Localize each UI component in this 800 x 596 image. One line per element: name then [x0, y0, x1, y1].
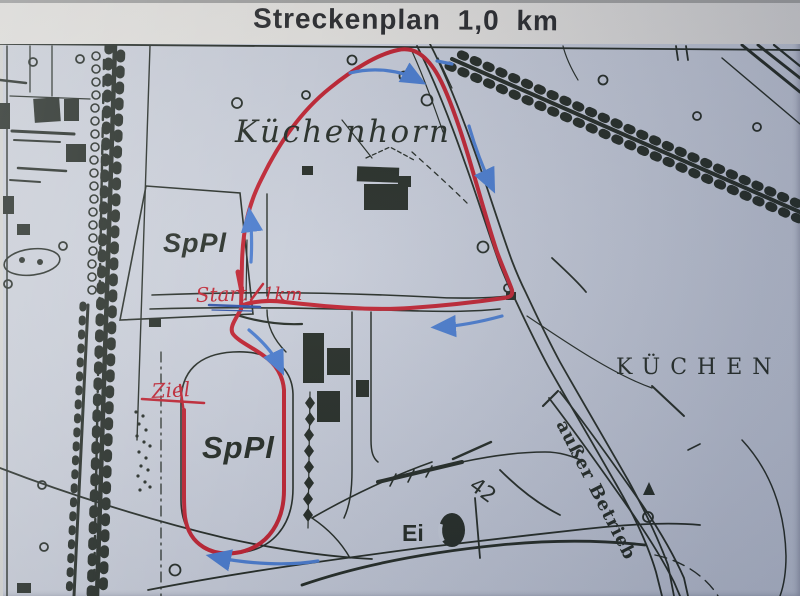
- label-sppl-upper: SpPl: [163, 228, 227, 258]
- top-right-railway: [449, 52, 800, 219]
- title-strip: Streckenplan 1,0 km: [0, 0, 800, 44]
- arrow-north: [250, 216, 252, 262]
- left-railway: [69, 46, 121, 596]
- map-drawing: Küchenhorn SpPl SpPl KÜCHEN außer Betrie…: [0, 0, 800, 596]
- corner-hatching: [563, 45, 800, 124]
- page-title: Streckenplan 1,0 km: [196, 2, 616, 38]
- label-road-number: 42: [465, 473, 501, 508]
- diamond-chain: [303, 392, 315, 528]
- label-kuechenhorn: Küchenhorn: [234, 114, 452, 150]
- arrow-west-return: [440, 316, 502, 327]
- finish-label: Ziel: [150, 377, 191, 403]
- arrow-bottom-west: [215, 557, 318, 564]
- streckenplan-photo: Küchenhorn SpPl SpPl KÜCHEN außer Betrie…: [0, 0, 800, 596]
- label-sppl-lower: SpPl: [202, 430, 275, 465]
- railway-triangle-symbol: [643, 482, 655, 495]
- start-underline-2: [212, 310, 252, 311]
- label-ei: Ei: [402, 520, 424, 546]
- start-label: Start: [195, 281, 248, 307]
- label-kuechen: KÜCHEN: [616, 353, 782, 380]
- distance-label: 1km: [263, 284, 302, 305]
